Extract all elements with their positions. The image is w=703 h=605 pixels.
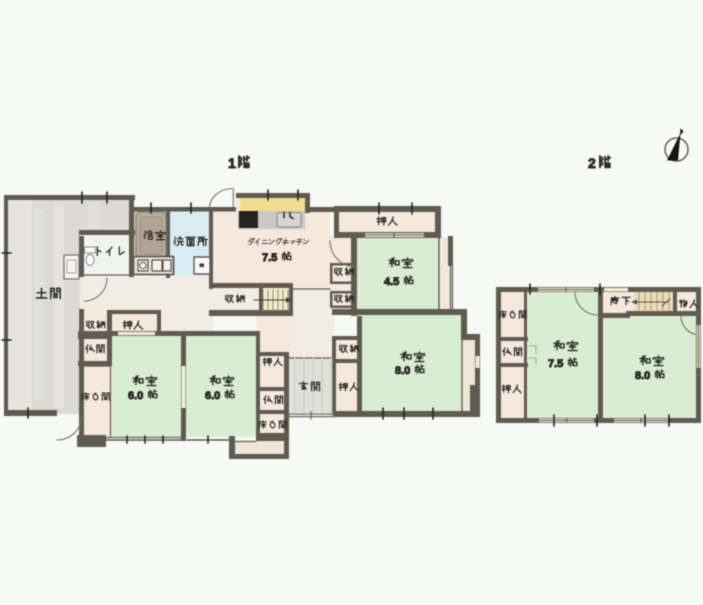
svg-text:4.5: 4.5 [384, 276, 399, 288]
svg-text:8.0: 8.0 [635, 370, 650, 382]
svg-text:1: 1 [228, 155, 236, 171]
svg-text:2: 2 [588, 155, 596, 171]
svg-text:8.0: 8.0 [395, 365, 410, 377]
svg-text:7.5: 7.5 [548, 358, 563, 370]
svg-text:6.0: 6.0 [128, 390, 143, 402]
svg-text:7.5: 7.5 [262, 252, 277, 264]
svg-text:6.0: 6.0 [205, 390, 220, 402]
